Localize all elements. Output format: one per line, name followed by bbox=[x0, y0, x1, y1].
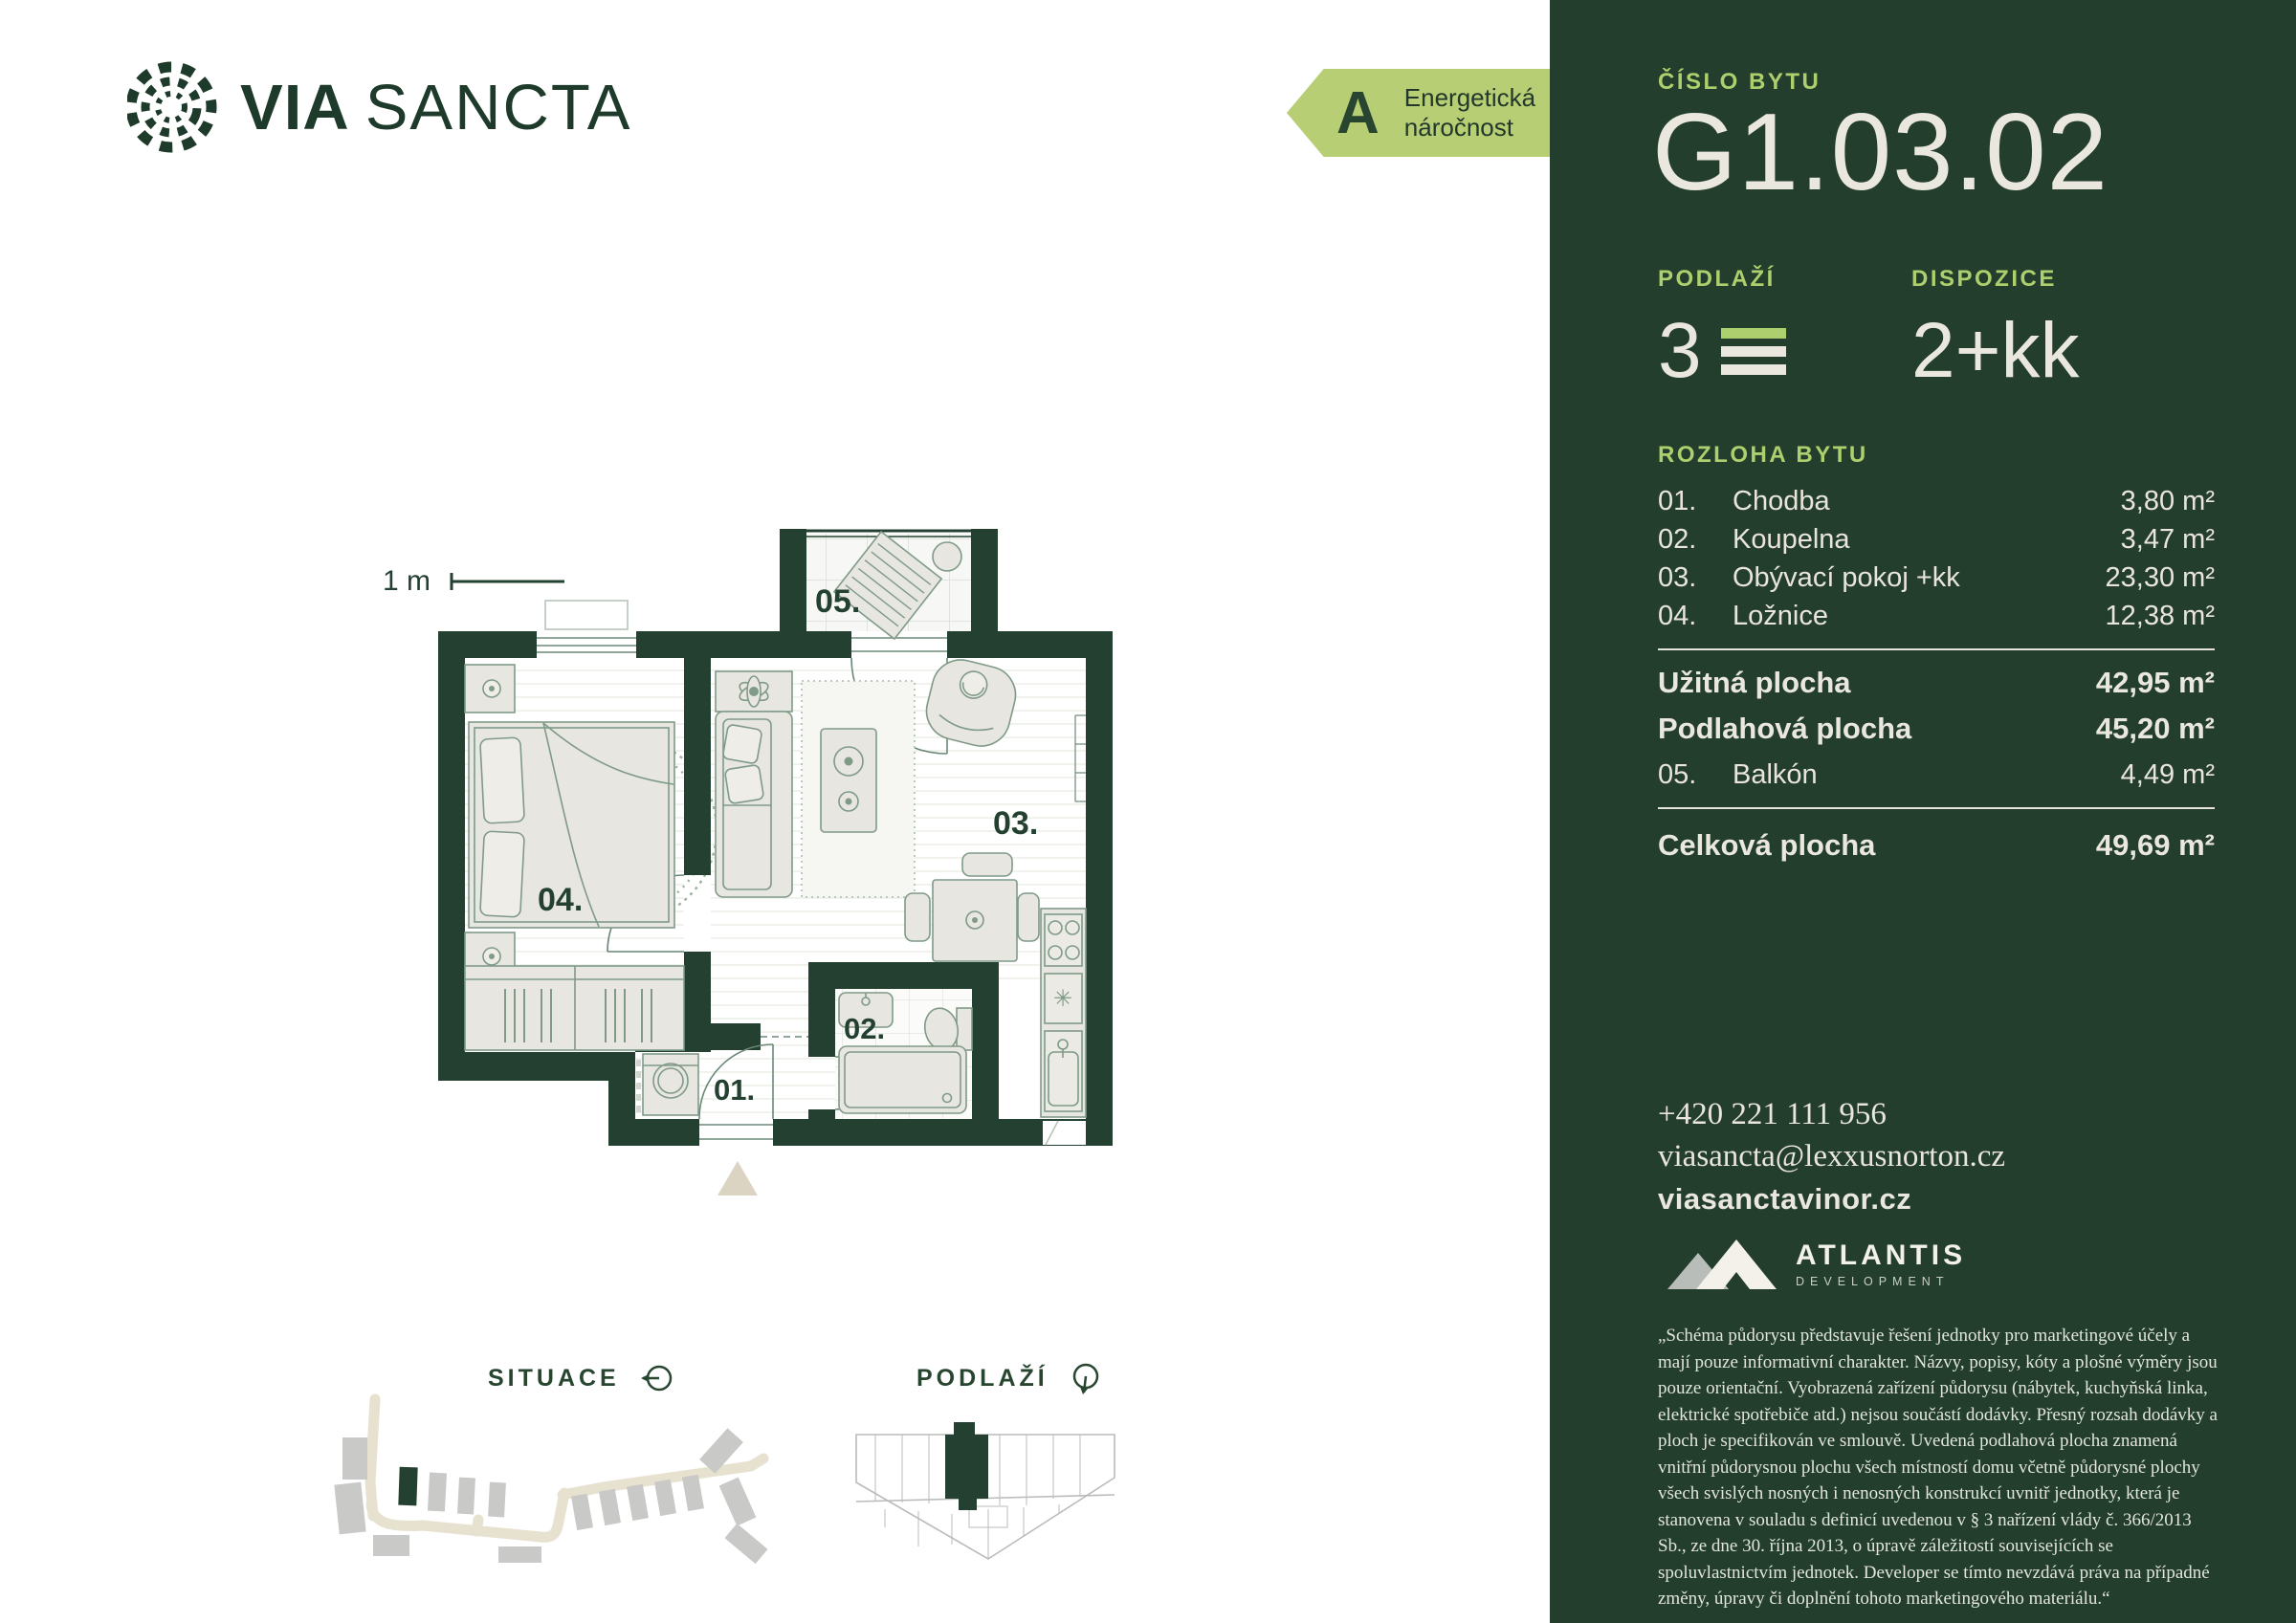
compass-west-icon bbox=[641, 1362, 673, 1394]
info-panel: ČÍSLO BYTU G1.03.02 PODLAŽÍ 3 DISPOZICE … bbox=[1550, 0, 2296, 1623]
layout-label: DISPOZICE bbox=[1911, 266, 2080, 293]
kitchen-sink bbox=[1045, 1031, 1082, 1111]
shower bbox=[839, 1046, 966, 1113]
contact-website: viasanctavinor.cz bbox=[1658, 1177, 2005, 1221]
highlighted-building bbox=[398, 1467, 417, 1506]
compass-south-icon bbox=[1070, 1362, 1102, 1394]
nightstand-top bbox=[465, 665, 515, 713]
table-row: 02. Koupelna 3,47 m² bbox=[1658, 524, 2215, 556]
flyer-sheet: VIA SANCTA A Energetická náročnost 1 m bbox=[0, 0, 2296, 1623]
disclaimer-text: „Schéma půdorysu představuje řešení jedn… bbox=[1658, 1323, 2222, 1612]
divider bbox=[1658, 807, 2215, 809]
logo-text-bold: VIA bbox=[240, 71, 350, 144]
floor-area-row: Podlahová plocha 45,20 m² bbox=[1658, 712, 2215, 746]
table-row: 01. Chodba 3,80 m² bbox=[1658, 486, 2215, 517]
floor-block: PODLAŽÍ 3 bbox=[1658, 266, 1786, 396]
unit-number: G1.03.02 bbox=[1652, 90, 2108, 215]
label-room-03: 03. bbox=[993, 805, 1038, 842]
via-sancta-logo: VIA SANCTA bbox=[127, 59, 632, 155]
layout-block: DISPOZICE 2+kk bbox=[1911, 266, 2080, 396]
scale-bar: 1 m bbox=[383, 565, 564, 597]
label-room-01: 01. bbox=[714, 1073, 755, 1107]
balcony-table bbox=[933, 542, 961, 571]
energy-grade: A bbox=[1336, 79, 1380, 147]
usable-area-row: Užitná plocha 42,95 m² bbox=[1658, 666, 2215, 700]
situace-title: SITUACE bbox=[488, 1362, 673, 1394]
label-room-04: 04. bbox=[538, 882, 583, 918]
floor-level-icon bbox=[1721, 328, 1786, 375]
atlantis-mountains-icon bbox=[1658, 1234, 1782, 1293]
via-sancta-logo-icon bbox=[127, 59, 219, 155]
logo-wordmark: VIA SANCTA bbox=[240, 71, 632, 144]
podlazi-map-title: PODLAŽÍ bbox=[916, 1362, 1102, 1394]
contact-phone: +420 221 111 956 bbox=[1658, 1093, 2005, 1135]
energy-label: Energetická náročnost bbox=[1404, 83, 1535, 143]
entry-arrow bbox=[717, 1161, 758, 1195]
balcony-row: 05. Balkón 4,49 m² bbox=[1658, 759, 2215, 791]
floor-label: PODLAŽÍ bbox=[1658, 266, 1786, 293]
highlighted-unit bbox=[945, 1422, 988, 1510]
scale-label: 1 m bbox=[383, 565, 430, 597]
label-room-02: 02. bbox=[844, 1012, 885, 1045]
sofa bbox=[716, 671, 792, 897]
floor-overview-map bbox=[847, 1411, 1124, 1573]
situace-map bbox=[316, 1392, 794, 1610]
energy-class-badge: A Energetická náročnost bbox=[1287, 69, 1551, 157]
layout-value: 2+kk bbox=[1911, 306, 2080, 396]
roads bbox=[370, 1399, 763, 1537]
floorplan: 1 m bbox=[373, 497, 1148, 1210]
wardrobe bbox=[465, 966, 684, 1050]
table-row: 04. Ložnice 12,38 m² bbox=[1658, 601, 2215, 632]
contact-email: viasancta@lexxusnorton.cz bbox=[1658, 1135, 2005, 1177]
divider bbox=[1658, 648, 2215, 650]
svg-text:✳: ✳ bbox=[1053, 986, 1072, 1012]
contact-block: +420 221 111 956 viasancta@lexxusnorton.… bbox=[1658, 1093, 2005, 1221]
tv-cabinet bbox=[821, 729, 876, 832]
logo-text-light: SANCTA bbox=[365, 71, 632, 144]
floor-value: 3 bbox=[1658, 306, 1702, 396]
area-table-label: ROZLOHA BYTU bbox=[1658, 442, 1868, 469]
developer-name: ATLANTIS bbox=[1796, 1239, 1966, 1272]
washing-machine bbox=[636, 1054, 698, 1115]
label-room-05: 05. bbox=[815, 583, 860, 620]
total-area-row: Celková plocha 49,69 m² bbox=[1658, 828, 2215, 863]
developer-sub: DEVELOPMENT bbox=[1796, 1275, 1966, 1288]
table-row: 03. Obývací pokoj +kk 23,30 m² bbox=[1658, 562, 2215, 594]
developer-logo: ATLANTIS DEVELOPMENT bbox=[1658, 1234, 1966, 1293]
